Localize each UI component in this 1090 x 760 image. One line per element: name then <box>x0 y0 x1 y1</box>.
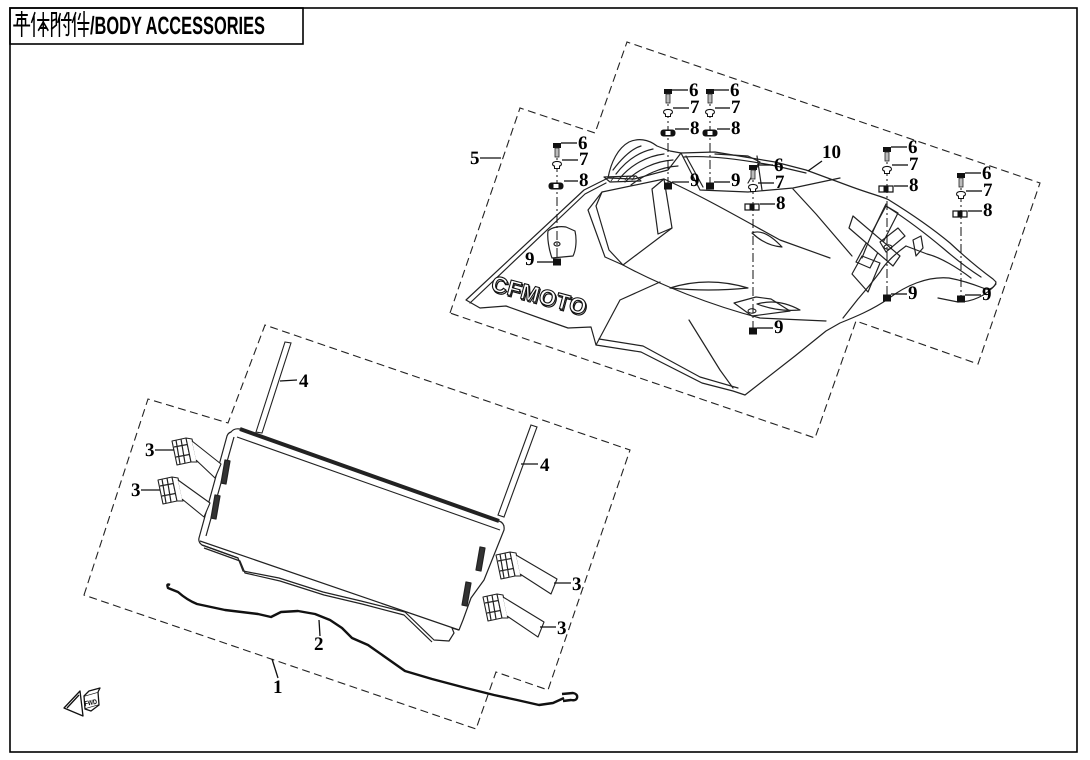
svg-text:8: 8 <box>776 193 786 214</box>
svg-text:9: 9 <box>690 170 700 191</box>
svg-text:1: 1 <box>273 677 283 698</box>
svg-text:8: 8 <box>731 118 741 139</box>
svg-text:7: 7 <box>690 97 700 118</box>
svg-text:8: 8 <box>690 118 700 139</box>
svg-text:8: 8 <box>983 200 993 221</box>
svg-text:2: 2 <box>314 634 324 655</box>
svg-text:8: 8 <box>579 170 589 191</box>
svg-text:8: 8 <box>909 175 919 196</box>
svg-text:10: 10 <box>822 142 841 163</box>
svg-text:4: 4 <box>299 371 309 392</box>
svg-text:9: 9 <box>982 284 992 305</box>
svg-text:7: 7 <box>731 97 741 118</box>
svg-text:/BODY ACCESSORIES: /BODY ACCESSORIES <box>90 12 265 40</box>
svg-text:7: 7 <box>775 172 785 193</box>
svg-text:4: 4 <box>540 455 550 476</box>
svg-text:7: 7 <box>909 154 919 175</box>
svg-text:3: 3 <box>557 618 567 639</box>
svg-text:9: 9 <box>731 170 741 191</box>
svg-text:9: 9 <box>908 283 918 304</box>
svg-text:9: 9 <box>525 249 535 270</box>
svg-text:3: 3 <box>145 440 155 461</box>
svg-text:7: 7 <box>983 180 993 201</box>
svg-text:9: 9 <box>774 317 784 338</box>
svg-text:3: 3 <box>131 480 141 501</box>
svg-text:3: 3 <box>572 574 582 595</box>
svg-text:5: 5 <box>470 148 480 169</box>
svg-text:7: 7 <box>579 149 589 170</box>
